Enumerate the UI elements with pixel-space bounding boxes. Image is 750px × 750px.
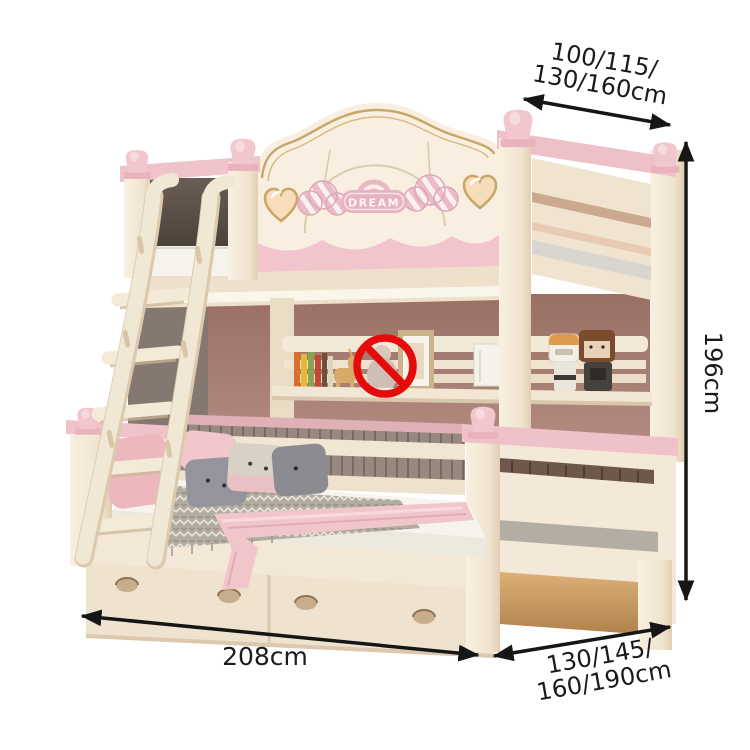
bed-post-knob: [500, 110, 535, 147]
product-dimension-image: DREAM: [0, 0, 750, 750]
toy-figure-brown: [579, 330, 615, 391]
lower-bed-footboard: [462, 407, 678, 652]
dream-badge: DREAM: [341, 190, 407, 213]
bed-post-knob: [123, 150, 150, 179]
bed-post-knob: [468, 407, 498, 439]
upper-bunk-front-post: [499, 110, 536, 462]
height-value: 196cm: [700, 320, 725, 426]
dream-badge-text: DREAM: [348, 197, 400, 210]
length-value: 208cm: [195, 644, 335, 671]
dimension-label-length: 208cm: [195, 644, 335, 671]
bed-post-knob: [228, 139, 258, 171]
dimension-label-height: 196cm: [695, 320, 725, 426]
bed-post-knob: [651, 142, 680, 173]
